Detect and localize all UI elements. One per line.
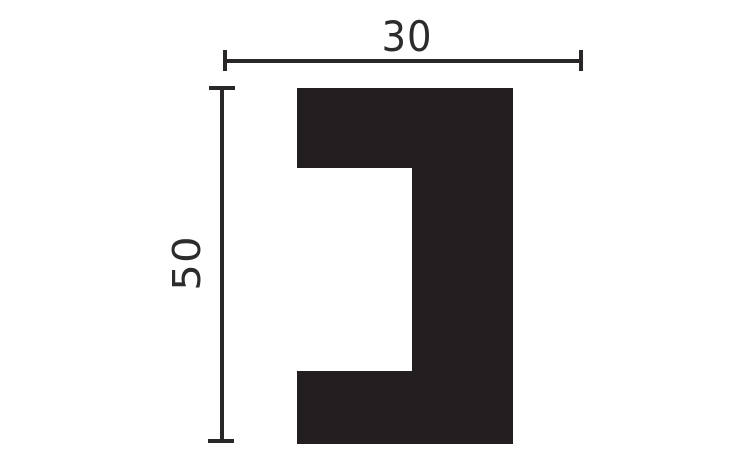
width-dimension-label: 30 (361, 16, 453, 58)
height-dimension-label: 50 (169, 223, 206, 303)
width-dimension-tick-right (579, 50, 583, 71)
height-dimension-tick-bottom (208, 439, 234, 443)
width-dimension-line (225, 59, 582, 63)
height-dimension-tick-top (209, 86, 235, 90)
profile-notch (297, 168, 412, 371)
profile-shape (297, 88, 513, 444)
profile-diagram: 30 50 (0, 0, 742, 449)
width-dimension-tick-left (223, 50, 227, 71)
height-dimension-line (220, 87, 224, 442)
